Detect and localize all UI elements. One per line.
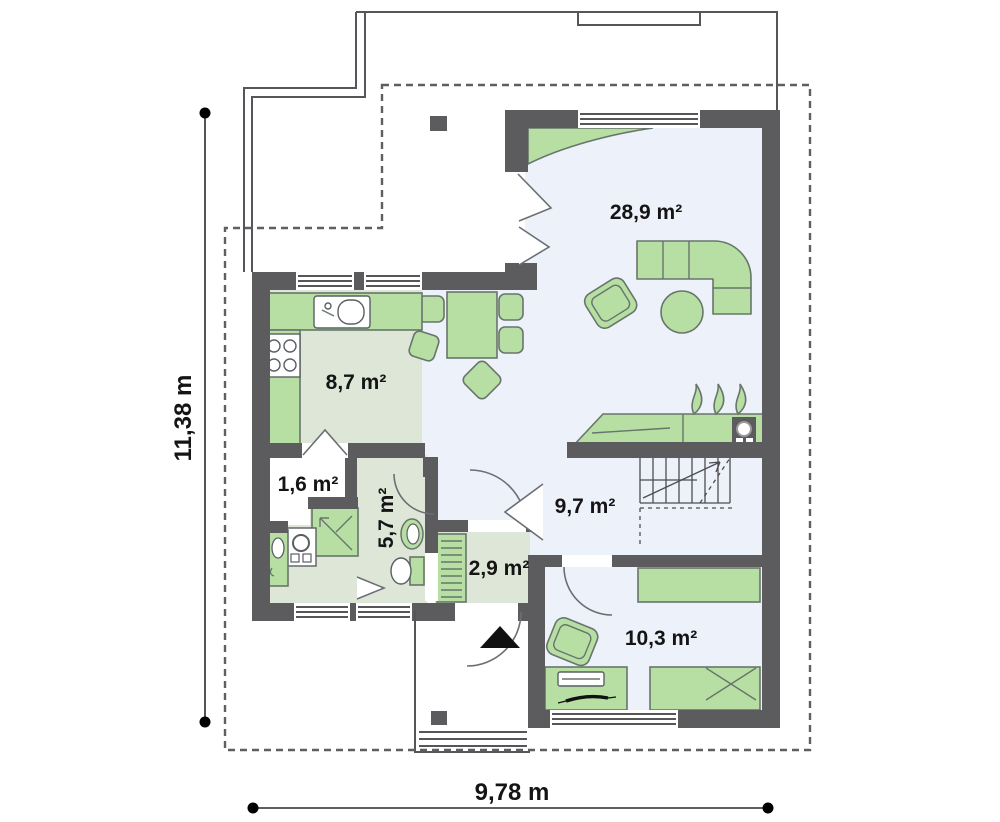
wall xyxy=(528,555,545,728)
bedroom-shelf xyxy=(638,568,760,602)
post xyxy=(431,711,447,725)
terrace-outline-inner xyxy=(252,12,365,272)
window xyxy=(356,603,412,621)
wall xyxy=(762,110,780,728)
wardrobe xyxy=(437,534,466,602)
window xyxy=(550,710,678,728)
dimension-horizontal: 9,78 m xyxy=(248,779,774,814)
wall xyxy=(518,603,545,621)
window xyxy=(578,110,700,128)
room-area-label: 9,7 m² xyxy=(555,495,616,518)
washing-machine xyxy=(286,528,316,566)
toilet xyxy=(391,557,424,585)
dining-table xyxy=(447,292,497,358)
dimension-vertical: 11,38 m xyxy=(170,108,211,728)
wall xyxy=(345,457,357,503)
room-area-label: 8,7 m² xyxy=(326,371,387,394)
entry-door-opening xyxy=(455,603,518,621)
room-area-label: 10,3 m² xyxy=(625,627,697,650)
porch-outline xyxy=(415,610,530,752)
upper-floor-outline xyxy=(356,12,777,110)
desk xyxy=(545,667,627,710)
shower xyxy=(312,508,358,556)
width-dimension-label: 9,78 m xyxy=(475,779,550,806)
height-dimension-label: 11,38 m xyxy=(170,375,197,462)
bed xyxy=(650,667,760,710)
window xyxy=(296,272,354,290)
coffee-table xyxy=(661,291,703,333)
floor-plan-page: 28,9 m² 8,7 m² 1,6 m² 5,7 m² 2,9 m² 9,7 … xyxy=(0,0,1000,822)
wall xyxy=(567,442,762,458)
entrance-arrow-icon xyxy=(480,626,520,648)
window xyxy=(364,272,422,290)
kitchen-sink xyxy=(314,296,370,328)
door-opening xyxy=(562,555,612,567)
window xyxy=(294,603,350,621)
door-opening xyxy=(425,553,438,601)
room-area-label: 5,7 m² xyxy=(375,488,398,549)
wall xyxy=(423,457,436,477)
dining-chair xyxy=(499,327,523,353)
wall xyxy=(505,110,528,172)
washbasin xyxy=(401,519,423,549)
post xyxy=(430,116,447,131)
wall xyxy=(252,603,455,621)
floor-plan-svg: 28,9 m² 8,7 m² 1,6 m² 5,7 m² 2,9 m² 9,7 … xyxy=(0,0,1000,822)
room-area-label: 2,9 m² xyxy=(469,557,530,580)
room-area-label: 28,9 m² xyxy=(610,201,682,224)
wall xyxy=(308,497,358,509)
dining-chair xyxy=(499,294,523,320)
terrace-outline xyxy=(244,12,356,272)
wall xyxy=(264,521,288,533)
roof-notch xyxy=(578,12,700,25)
porch-steps xyxy=(419,732,527,746)
room-area-label: 1,6 m² xyxy=(278,473,339,496)
